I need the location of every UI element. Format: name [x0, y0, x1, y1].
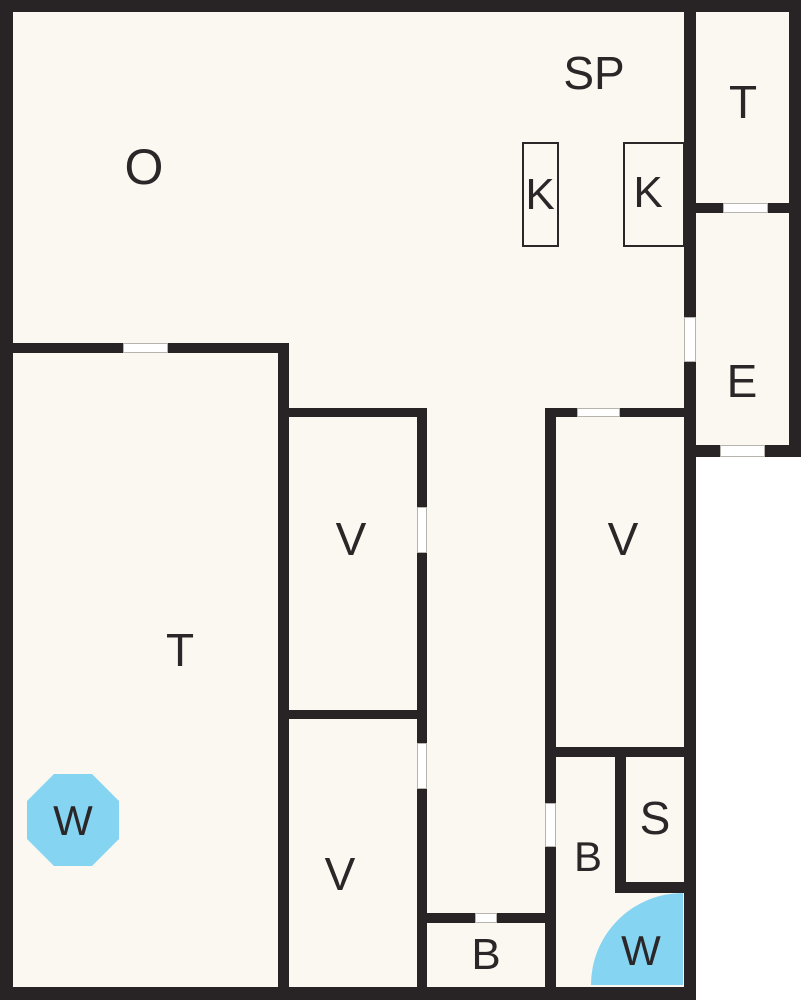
wall	[417, 408, 427, 507]
room-label-b-right: B	[574, 836, 602, 878]
wall	[615, 757, 626, 882]
door-opening	[545, 803, 556, 847]
wall	[0, 0, 801, 12]
wall	[765, 445, 801, 457]
room-label-t-upper-right: T	[729, 79, 757, 125]
wall	[556, 747, 684, 757]
wall	[684, 362, 696, 1000]
door-opening	[723, 203, 768, 213]
door-opening	[417, 507, 427, 553]
wall	[289, 408, 427, 417]
wall	[497, 913, 556, 923]
wall	[768, 203, 801, 213]
room-label-w-octagon: W	[53, 800, 93, 842]
wall	[417, 789, 427, 987]
wall	[0, 0, 13, 1000]
wall	[168, 343, 289, 353]
room-label-v-right: V	[608, 516, 639, 562]
door-opening	[475, 913, 497, 923]
wall	[0, 343, 123, 353]
wall	[620, 408, 684, 417]
door-opening	[417, 743, 427, 789]
door-opening	[684, 317, 696, 362]
room-label-o: O	[125, 142, 164, 192]
room-label-v-bottom: V	[325, 851, 356, 897]
wall	[789, 0, 801, 457]
wall	[0, 987, 696, 1000]
wall	[615, 882, 684, 893]
floor-plan: OSPKKTEVVTVWBSBW	[0, 0, 801, 1000]
door-opening	[720, 445, 765, 457]
wall	[417, 553, 427, 743]
room-label-e: E	[727, 358, 758, 404]
door-opening	[577, 408, 620, 417]
room-label-sp: SP	[563, 50, 624, 96]
room-label-t-left: T	[166, 627, 194, 673]
wall	[545, 408, 556, 803]
room-label-w-quarter: W	[621, 930, 661, 972]
wall	[684, 445, 720, 457]
wall	[684, 0, 696, 317]
room-label-v-middle: V	[336, 516, 367, 562]
room-label-k-right: K	[633, 171, 662, 215]
room-label-s: S	[640, 795, 671, 841]
wall	[289, 710, 417, 719]
room-label-k-left: K	[525, 173, 554, 217]
wall	[427, 913, 475, 923]
room-label-b-bottom: B	[471, 933, 500, 977]
wall	[684, 203, 723, 213]
door-opening	[123, 343, 168, 353]
wall	[278, 343, 289, 987]
